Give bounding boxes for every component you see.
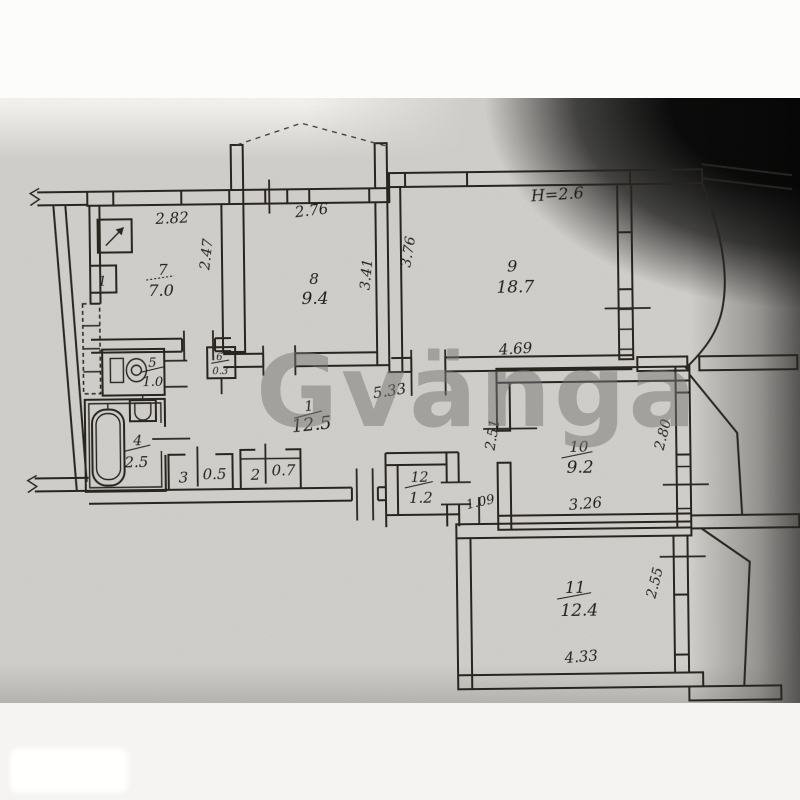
watermark-text: Gvänga — [256, 342, 699, 442]
blurred-logo-block — [10, 748, 128, 793]
